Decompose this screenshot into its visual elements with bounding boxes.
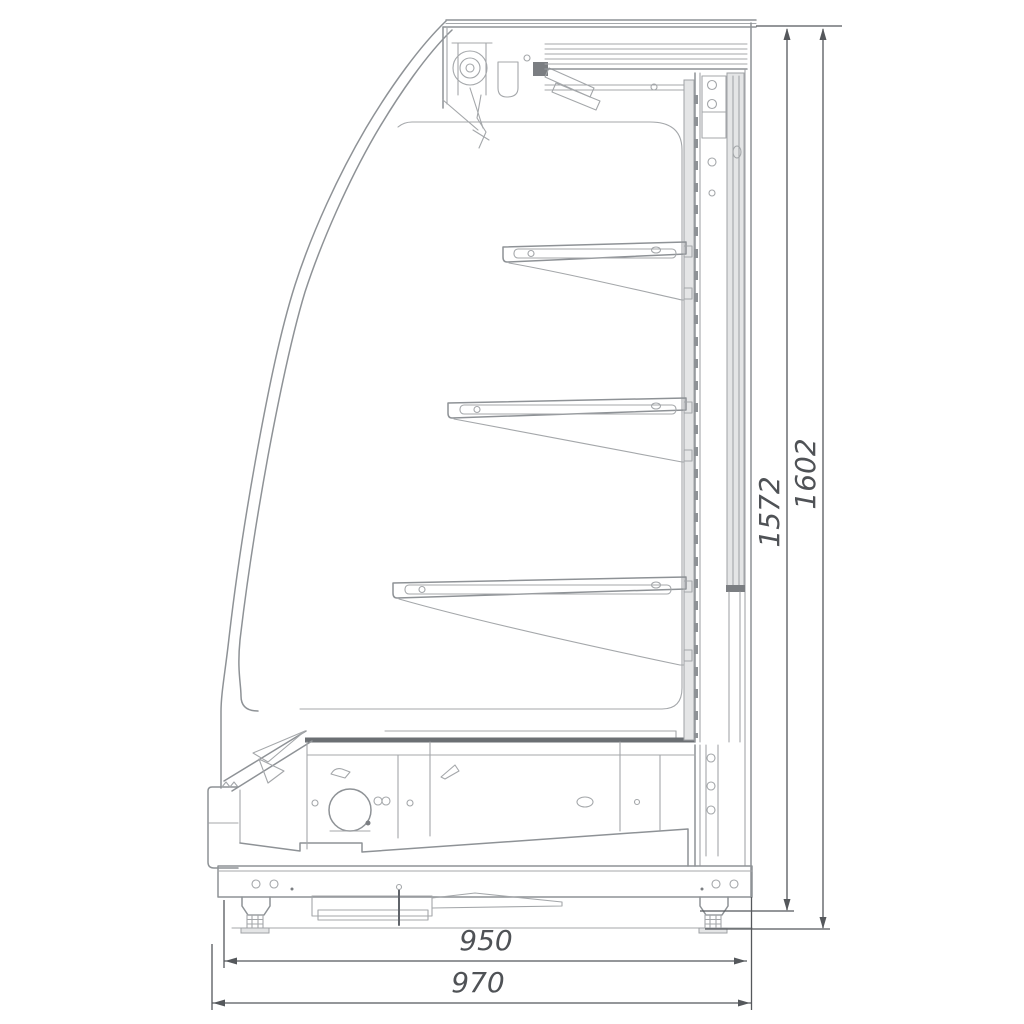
dimension-label-970: 970 bbox=[451, 966, 504, 999]
mounting-bracket bbox=[702, 76, 726, 138]
screw-icon bbox=[524, 55, 530, 61]
roller-blind-icon bbox=[443, 43, 492, 148]
display-case-section-drawing: 1572 1602 950 970 bbox=[0, 0, 1024, 1024]
lamp-bracket bbox=[498, 62, 518, 97]
air-deflector-slats bbox=[545, 68, 600, 110]
kick-panel bbox=[224, 731, 312, 843]
drain-pan bbox=[312, 885, 562, 926]
leveling-foot-front bbox=[241, 897, 270, 933]
wedge-detail bbox=[441, 765, 459, 779]
foot-pad bbox=[241, 928, 269, 933]
shelf-2 bbox=[448, 398, 692, 462]
technical-drawing-canvas: 1572 1602 950 970 bbox=[0, 0, 1024, 1024]
dimension-label-1602: 1602 bbox=[789, 438, 822, 509]
shelf-3 bbox=[393, 577, 692, 665]
base-compartment bbox=[208, 731, 718, 868]
front-glass-panel bbox=[221, 21, 452, 788]
shelf-1 bbox=[503, 242, 692, 300]
dimension-label-950: 950 bbox=[459, 924, 512, 957]
rear-duct bbox=[727, 73, 744, 587]
oval-detail bbox=[577, 797, 593, 807]
bottom-platform bbox=[218, 866, 752, 933]
compressor-opening bbox=[329, 789, 371, 831]
hook-detail bbox=[331, 769, 350, 778]
front-bumper bbox=[208, 782, 238, 868]
canopy bbox=[443, 20, 756, 148]
leveling-foot-rear bbox=[699, 897, 728, 933]
dimension-label-1572: 1572 bbox=[753, 476, 786, 547]
air-duct-grille bbox=[545, 44, 747, 69]
duct-end-cap bbox=[726, 585, 745, 592]
